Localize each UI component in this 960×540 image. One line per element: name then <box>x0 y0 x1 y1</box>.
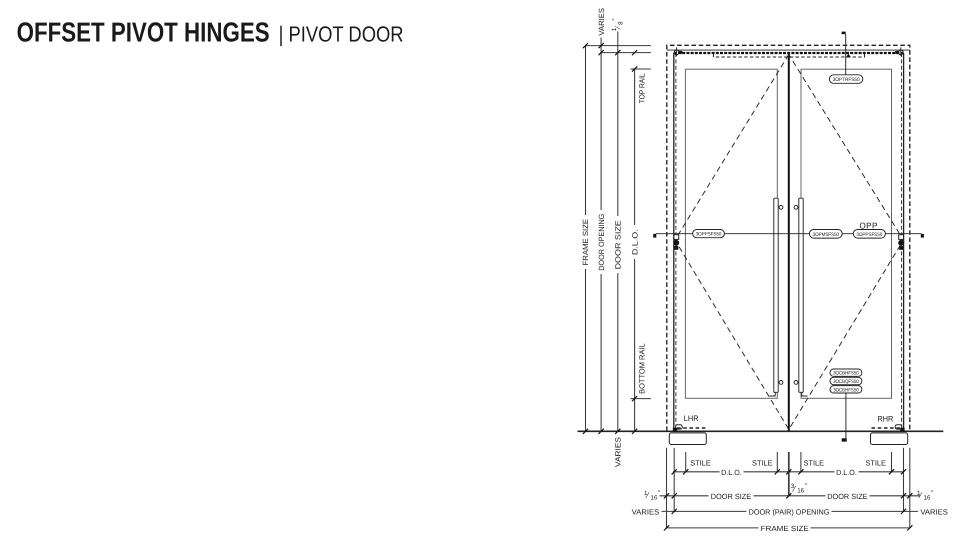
svg-text:”: ” <box>805 483 807 490</box>
svg-text:DOOR (PAIR) OPENING: DOOR (PAIR) OPENING <box>749 507 830 516</box>
svg-text:DOOR SIZE: DOOR SIZE <box>827 492 867 501</box>
svg-text:VARIES: VARIES <box>920 507 948 516</box>
svg-text:3OPTRFS50: 3OPTRFS50 <box>833 77 860 83</box>
svg-text:3OCBQFS50: 3OCBQFS50 <box>833 379 859 385</box>
svg-text:TOP RAIL: TOP RAIL <box>638 73 647 103</box>
svg-text:RHR: RHR <box>878 415 894 424</box>
svg-text:D.L.O.: D.L.O. <box>630 229 639 255</box>
svg-text:FRAME SIZE: FRAME SIZE <box>581 219 590 266</box>
svg-text:VARIES: VARIES <box>614 437 623 467</box>
svg-text:3OPPSFS50: 3OPPSFS50 <box>696 232 722 238</box>
svg-text:FRAME SIZE: FRAME SIZE <box>761 524 809 533</box>
svg-text:”: ” <box>658 490 660 497</box>
svg-text:STILE: STILE <box>865 458 886 467</box>
svg-text:VARIES: VARIES <box>632 507 660 516</box>
svg-text:DOOR OPENING: DOOR OPENING <box>597 214 606 271</box>
svg-text:”: ” <box>612 18 619 20</box>
svg-text:LHR: LHR <box>684 414 699 423</box>
svg-text:DOOR SIZE: DOOR SIZE <box>711 492 751 501</box>
svg-text:”: ” <box>931 490 933 497</box>
svg-text:3OPPSFS50: 3OPPSFS50 <box>856 232 882 238</box>
svg-text:3OCBHFS50: 3OCBHFS50 <box>833 387 859 393</box>
svg-text:16: 16 <box>797 488 804 495</box>
svg-text:3OPMSFS50: 3OPMSFS50 <box>813 232 840 238</box>
svg-text:3OCBHFS50: 3OCBHFS50 <box>833 371 859 377</box>
svg-text:16: 16 <box>924 494 931 501</box>
svg-text:16: 16 <box>651 494 658 501</box>
svg-text:OFFSET PIVOT HINGES: OFFSET PIVOT HINGES <box>17 17 270 48</box>
svg-text:D.L.O.: D.L.O. <box>836 468 857 477</box>
svg-text:STILE: STILE <box>804 458 825 467</box>
svg-text:STILE: STILE <box>752 458 773 467</box>
svg-text:| PIVOT DOOR: | PIVOT DOOR <box>279 22 404 47</box>
svg-text:VARIES: VARIES <box>597 8 606 36</box>
svg-text:STILE: STILE <box>690 458 711 467</box>
svg-text:BOTTOM RAIL: BOTTOM RAIL <box>638 343 647 394</box>
svg-text:OPP: OPP <box>859 220 877 230</box>
svg-text:D.L.O.: D.L.O. <box>721 468 742 477</box>
svg-text:DOOR SIZE: DOOR SIZE <box>614 220 623 269</box>
